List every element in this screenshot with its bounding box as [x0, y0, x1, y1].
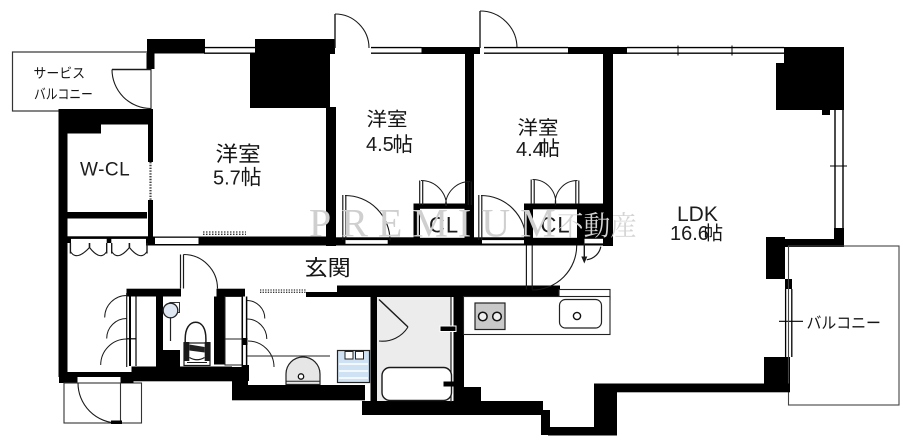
svg-text:W-CL: W-CL [80, 160, 130, 181]
svg-text:4.4: 4.4 [516, 139, 544, 161]
svg-text:4.5: 4.5 [366, 134, 394, 156]
svg-text:16.6: 16.6 [670, 223, 709, 245]
svg-text:PREMIUM: PREMIUM [309, 201, 566, 246]
svg-text:5.7: 5.7 [213, 168, 241, 190]
